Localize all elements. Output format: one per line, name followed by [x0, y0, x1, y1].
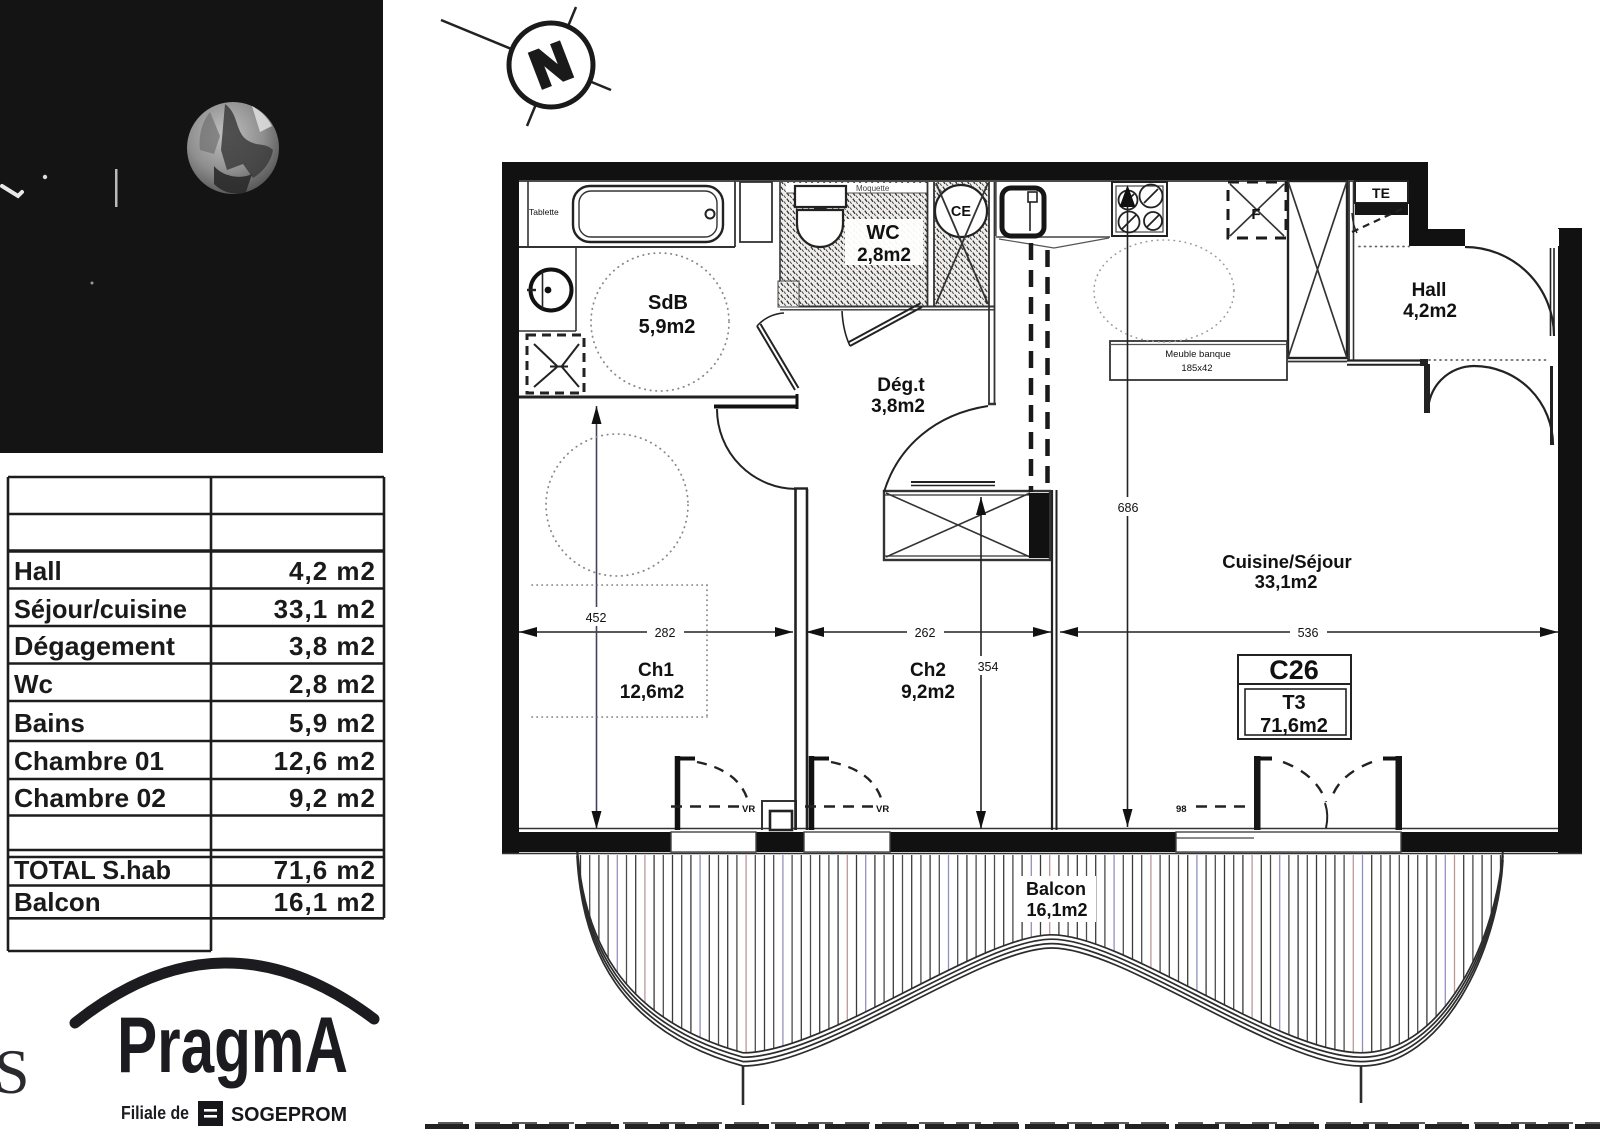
svg-text:71,6 m2: 71,6 m2 — [274, 855, 376, 885]
svg-text:33,1 m2: 33,1 m2 — [274, 594, 376, 624]
svg-text:PragmA: PragmA — [117, 1000, 348, 1089]
svg-text:VR: VR — [742, 804, 755, 815]
svg-text:4,2m2: 4,2m2 — [1403, 301, 1457, 322]
svg-text:SdB: SdB — [648, 292, 688, 314]
svg-text:9,2m2: 9,2m2 — [901, 682, 955, 703]
svg-text:354: 354 — [978, 660, 999, 674]
svg-text:S: S — [0, 1036, 30, 1107]
svg-text:Chambre 01: Chambre 01 — [14, 746, 164, 776]
svg-text:Filiale de: Filiale de — [121, 1103, 189, 1123]
svg-text:2,8m2: 2,8m2 — [857, 245, 911, 266]
svg-text:9,2 m2: 9,2 m2 — [289, 783, 376, 813]
svg-text:3,8m2: 3,8m2 — [871, 396, 925, 417]
svg-text:452: 452 — [586, 611, 607, 625]
svg-text:C26: C26 — [1269, 655, 1319, 685]
svg-text:Wc: Wc — [14, 669, 53, 699]
svg-text:F: F — [1251, 206, 1260, 223]
svg-text:TOTAL S.hab: TOTAL S.hab — [14, 855, 171, 885]
svg-text:Séjour/cuisine: Séjour/cuisine — [14, 594, 187, 624]
svg-text:Balcon: Balcon — [1026, 879, 1086, 899]
svg-text:3,8 m2: 3,8 m2 — [289, 631, 376, 661]
svg-text:5,9 m2: 5,9 m2 — [289, 708, 376, 738]
svg-text:Hall: Hall — [14, 556, 62, 586]
svg-text:TE: TE — [1372, 185, 1390, 201]
svg-text:SOGEPROM: SOGEPROM — [231, 1104, 347, 1126]
svg-text:33,1m2: 33,1m2 — [1255, 571, 1318, 592]
svg-text:Tablette: Tablette — [529, 207, 559, 217]
svg-text:2,8 m2: 2,8 m2 — [289, 669, 376, 699]
svg-text:Cuisine/Séjour: Cuisine/Séjour — [1222, 551, 1352, 572]
svg-text:Hall: Hall — [1412, 280, 1447, 301]
svg-text:Dég.t: Dég.t — [877, 375, 925, 396]
svg-text:VR: VR — [876, 804, 889, 815]
svg-text:4,2 m2: 4,2 m2 — [289, 556, 376, 586]
svg-text:282: 282 — [655, 626, 676, 640]
svg-text:Ch1: Ch1 — [638, 660, 674, 681]
svg-text:Chambre 02: Chambre 02 — [14, 783, 166, 813]
svg-text:185x42: 185x42 — [1181, 363, 1212, 374]
svg-text:Bains: Bains — [14, 708, 85, 738]
svg-text:Meuble banque: Meuble banque — [1165, 349, 1231, 360]
svg-text:5,9m2: 5,9m2 — [639, 316, 696, 338]
svg-text:686: 686 — [1118, 501, 1139, 515]
svg-text:CE: CE — [951, 204, 971, 220]
svg-text:98: 98 — [1176, 804, 1187, 815]
svg-text:Balcon: Balcon — [14, 887, 101, 917]
svg-text:Moquette: Moquette — [856, 184, 890, 193]
svg-text:Ch2: Ch2 — [910, 660, 946, 681]
svg-text:12,6 m2: 12,6 m2 — [274, 746, 376, 776]
svg-text:WC: WC — [866, 222, 899, 244]
svg-text:16,1m2: 16,1m2 — [1026, 900, 1087, 920]
svg-text:536: 536 — [1298, 626, 1319, 640]
svg-text:T3: T3 — [1282, 692, 1305, 714]
svg-text:12,6m2: 12,6m2 — [620, 682, 684, 703]
svg-text:71,6m2: 71,6m2 — [1260, 715, 1328, 737]
svg-text:16,1 m2: 16,1 m2 — [274, 887, 376, 917]
svg-text:Dégagement: Dégagement — [14, 631, 175, 661]
svg-text:262: 262 — [915, 626, 936, 640]
